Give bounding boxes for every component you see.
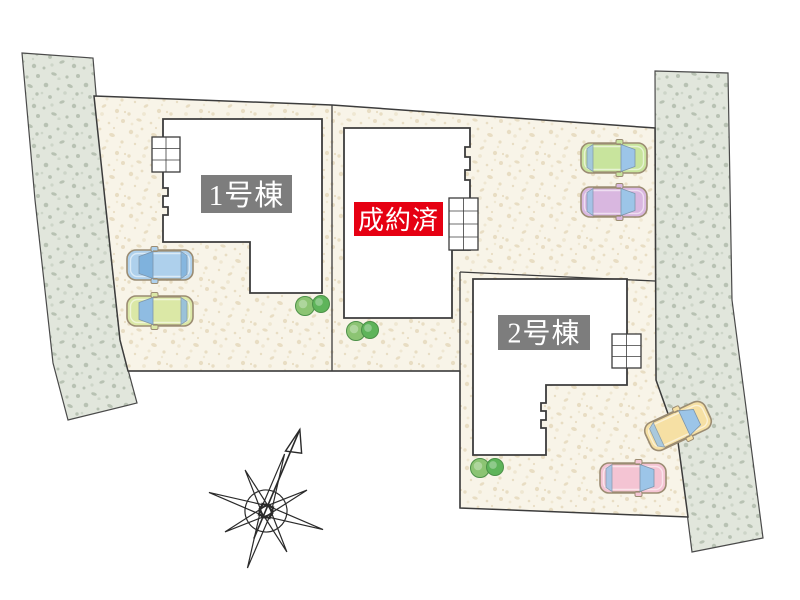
site-plan-canvas: 1号棟 成約済 2号棟 <box>0 0 800 600</box>
car-blue <box>127 247 193 284</box>
car-lime <box>127 293 193 330</box>
sold-label-text: 成約済 <box>358 205 439 235</box>
balcony-grid-building-2 <box>612 334 641 368</box>
balcony-grid-building-center <box>449 198 478 250</box>
tree-icon <box>362 322 379 339</box>
car-pink <box>600 460 666 497</box>
tree-icon <box>313 296 330 313</box>
compass-north-icon <box>190 409 350 587</box>
car-purple <box>581 184 647 221</box>
site-plan-page: 1号棟 成約済 2号棟 <box>0 0 800 600</box>
balcony-grid-building-1 <box>152 137 180 172</box>
unit-2-label: 2号棟 <box>498 315 590 350</box>
car-green <box>581 140 647 177</box>
tree-icon <box>296 297 315 316</box>
tree-icon <box>487 459 504 476</box>
unit-center-sold-label: 成約済 <box>354 202 443 236</box>
unit-1-label-text: 1号棟 <box>209 179 285 212</box>
unit-1-label: 1号棟 <box>201 175 292 213</box>
unit-2-label-text: 2号棟 <box>507 318 580 350</box>
